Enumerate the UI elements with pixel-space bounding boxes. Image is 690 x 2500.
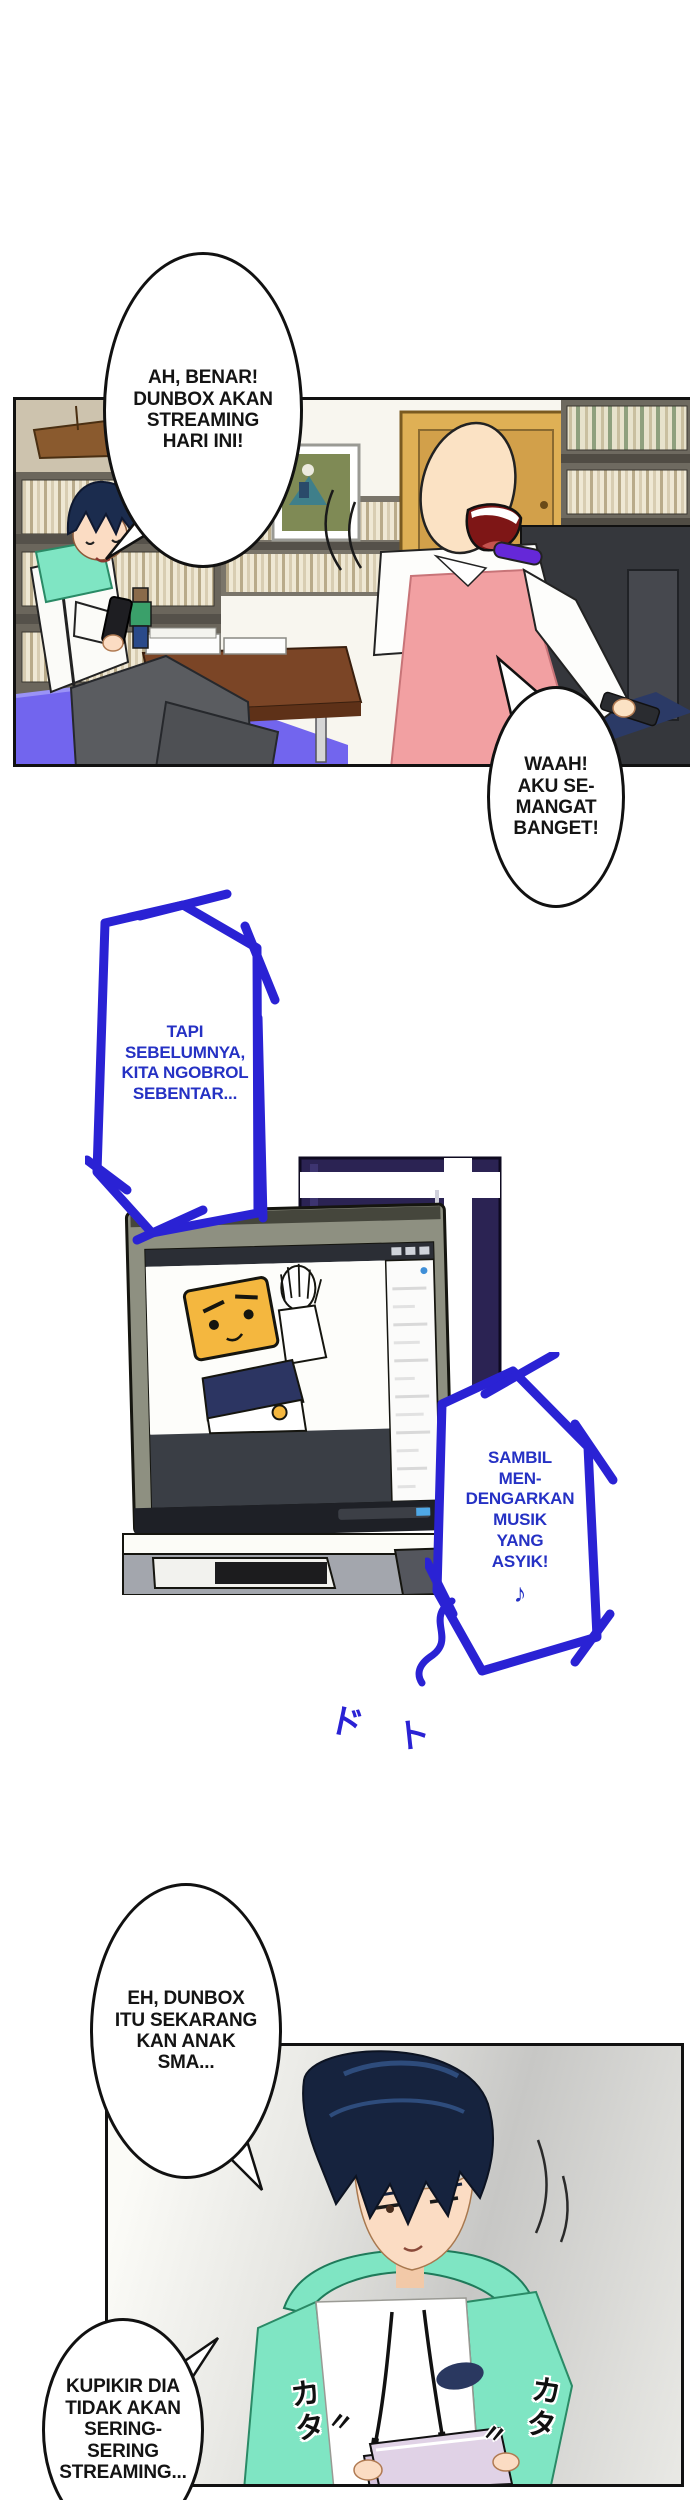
marker-text-music: SAMBIL MEN- DENGARKAN MUSIK YANG ASYIK! … [445, 1448, 595, 1606]
marker-squiggle [400, 1595, 470, 1690]
typing-sfx-right: カタ [513, 2371, 566, 2444]
speech-bubble-announce: AH, BENAR! DUNBOX AKAN STREAMING HARI IN… [103, 252, 303, 568]
speech-text: WAAH! AKU SE- MANGAT BANGET! [513, 754, 598, 840]
paper-stacks [146, 628, 286, 654]
marker-scribble-1: ド [325, 1692, 368, 1747]
monitor [126, 1204, 452, 1538]
speech-text: KUPIKIR DIA TIDAK AKAN SERING- SERING ST… [59, 2376, 186, 2483]
marker-text-intro: TAPI SEBELUMNYA, KITA NGOBROL SEBENTAR..… [100, 1022, 270, 1105]
music-note-icon: ♪ [445, 1580, 595, 1606]
box-head [183, 1277, 278, 1361]
speech-text: AH, BENAR! DUNBOX AKAN STREAMING HARI IN… [133, 367, 273, 453]
bookshelf-right [561, 400, 690, 540]
marker-scribble-2: ト [394, 1706, 433, 1758]
comic-page: AH, BENAR! DUNBOX AKAN STREAMING HARI IN… [0, 0, 690, 2500]
motion-line [561, 2176, 568, 2242]
speech-bubble-school: EH, DUNBOX ITU SEKARANG KAN ANAK SMA... [90, 1883, 282, 2179]
block-figurine [130, 588, 151, 648]
speech-text: EH, DUNBOX ITU SEKARANG KAN ANAK SMA... [115, 1988, 257, 2074]
typing-sfx-left: カタ [277, 2375, 330, 2448]
speech-bubble-excited: WAAH! AKU SE- MANGAT BANGET! [487, 686, 625, 908]
motion-line [536, 2140, 547, 2233]
